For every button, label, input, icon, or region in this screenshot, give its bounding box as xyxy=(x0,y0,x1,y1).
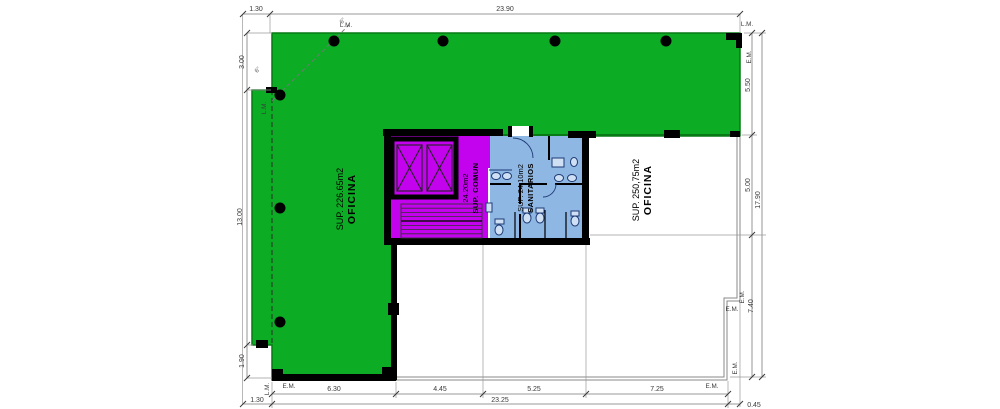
angle-note-2: 6'' xyxy=(254,66,262,74)
dim-bottom-seg-1: 6.30 xyxy=(327,386,341,393)
toilet-tank xyxy=(536,208,544,213)
dim-bottom-seg-4: 7.25 xyxy=(650,386,664,393)
marker-em-bottom-left: E.M. xyxy=(283,383,296,390)
marker-em-top-right: E.M. xyxy=(746,50,753,63)
wall-seg-2 xyxy=(664,130,680,138)
dim-left-seg-1: 3.00 xyxy=(239,55,246,69)
sink xyxy=(568,175,577,182)
dim-bottom-seg-3: 5.25 xyxy=(527,386,541,393)
marker-em-right-step: E.M. xyxy=(739,290,746,303)
sink xyxy=(555,175,564,182)
column-dot xyxy=(275,317,286,328)
regions xyxy=(252,33,740,380)
marker-em-step: E.M. xyxy=(726,306,739,313)
toilet xyxy=(536,213,544,223)
oficina-right-title: OFICINA xyxy=(642,165,654,215)
dim-right-seg-2: 5.00 xyxy=(745,178,752,192)
dim-left-seg-3: 1.90 xyxy=(239,354,246,368)
dim-bottom-seg-2: 4.45 xyxy=(433,386,447,393)
column-dot xyxy=(550,36,561,47)
dim-top-total: 23.90 xyxy=(496,6,514,13)
column-dot xyxy=(275,90,286,101)
sink xyxy=(492,173,501,180)
toilet xyxy=(571,216,579,226)
sanitarios-title: SANITARIOS xyxy=(526,163,535,213)
dim-bottom-total: 23.25 xyxy=(491,397,509,404)
marker-em-bottom-right: E.M. xyxy=(706,383,719,390)
dim-top-offset: 1.30 xyxy=(249,6,263,13)
column-dot xyxy=(329,36,340,47)
core-bottom-wall xyxy=(384,238,590,245)
sup-comun-area: 24.20m2 xyxy=(461,173,470,202)
column-dot xyxy=(661,36,672,47)
column-dot xyxy=(275,203,286,214)
floor-plan-canvas: 1.30 23.90 6.30 4.45 5.25 7.25 1.30 23.2… xyxy=(0,0,1000,409)
oficina-left-area: SUP. 226.65m2 xyxy=(335,168,345,230)
sanitarios-area: SUP. 24,10m2 xyxy=(516,164,525,212)
floor-plan-drawing: 1.30 23.90 6.30 4.45 5.25 7.25 1.30 23.2… xyxy=(0,0,1000,409)
wall-seg-3 xyxy=(730,131,740,137)
counter-unit xyxy=(552,158,564,167)
column-dot xyxy=(438,36,449,47)
core-top-wall xyxy=(383,129,503,136)
core-right-wall xyxy=(582,131,589,245)
toilet-tank xyxy=(495,219,504,224)
urinal xyxy=(571,158,578,167)
toilet xyxy=(495,225,503,235)
toilet-tank xyxy=(571,211,579,216)
marker-lm-inside: L.M. xyxy=(261,102,268,114)
oficina-right-area: SUP. 250,75m2 xyxy=(631,159,641,221)
sup-comun-title: SUP. COMUN xyxy=(471,163,480,214)
marker-lm-top-right: L.M. xyxy=(741,21,753,28)
dim-right-seg-3: 7.40 xyxy=(748,299,755,313)
notch-corner-bottom xyxy=(256,340,268,348)
bidet xyxy=(486,203,492,212)
corner-wall-top-right-2 xyxy=(726,33,742,40)
toilet xyxy=(523,213,531,223)
dim-right-seg-1: 5.50 xyxy=(745,78,752,92)
dim-right-total: 17.90 xyxy=(755,191,762,209)
entry-notch xyxy=(512,126,529,136)
wing-corner-left xyxy=(272,369,283,380)
wing-bottom-wall xyxy=(272,374,396,381)
marker-em-right-bottom: E.M. xyxy=(732,361,739,374)
wing-column-block xyxy=(388,303,399,315)
dim-left-seg-2: 13.00 xyxy=(237,208,244,226)
dim-bottom-offset-right: 0.45 xyxy=(747,402,761,409)
entry-jamb-left xyxy=(508,126,512,137)
sink xyxy=(503,173,512,180)
dim-bottom-offset: 1.30 xyxy=(250,397,264,404)
oficina-left-title: OFICINA xyxy=(346,174,358,224)
marker-lm-bottom-left: L.M. xyxy=(264,383,271,395)
entry-jamb-right xyxy=(529,126,533,137)
wing-corner-right xyxy=(382,367,396,381)
